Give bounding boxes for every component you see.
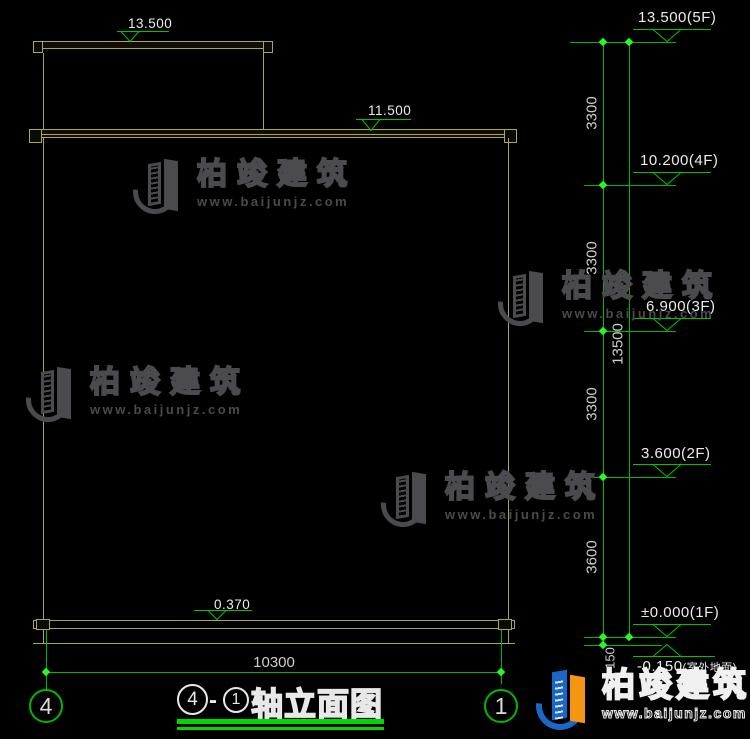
watermark-building-icon bbox=[164, 159, 178, 211]
marker-5f-value: 13.500 bbox=[638, 9, 687, 26]
corner-logo-building-icon bbox=[552, 670, 567, 720]
watermark-text: 柏竣建筑 www.baijunjz.com bbox=[90, 366, 250, 417]
marker-1f-label: ±0.000(1F) bbox=[641, 604, 719, 621]
watermark-text: 柏竣建筑 www.baijunjz.com bbox=[562, 270, 722, 321]
parapet-wall-right bbox=[263, 53, 264, 131]
main-roof-midline bbox=[30, 134, 516, 135]
watermark: 柏竣建筑 www.baijunjz.com bbox=[381, 471, 605, 533]
dim-width: 10300 bbox=[253, 654, 295, 671]
dim-tick bbox=[625, 38, 633, 46]
base-wall-right bbox=[508, 629, 509, 643]
marker-roof-symbol bbox=[356, 119, 411, 131]
axis-bubble-1: 1 bbox=[484, 689, 518, 723]
watermark-building-icon bbox=[529, 271, 543, 323]
level-line-5f bbox=[570, 42, 676, 43]
dim-segment-1: 3300 bbox=[584, 96, 601, 129]
marker-4f-value: 10.200 bbox=[640, 152, 689, 169]
cad-elevation-canvas: 13.500 11.500 0.370 3300 3300 3300 3600 … bbox=[0, 0, 750, 739]
watermark-brand: 柏竣建筑 bbox=[562, 270, 722, 304]
watermark-brand: 柏竣建筑 bbox=[197, 158, 357, 192]
marker-1f-suffix: (1F) bbox=[690, 604, 720, 621]
watermark-logo-icon bbox=[381, 471, 435, 533]
parapet-cap-left bbox=[33, 41, 43, 53]
parapet-wall-left bbox=[43, 53, 44, 131]
title-axis-start-bubble: 4 bbox=[177, 684, 208, 715]
watermark-site: www.baijunjz.com bbox=[197, 194, 357, 209]
watermark-logo-icon bbox=[498, 270, 552, 332]
watermark-site: www.baijunjz.com bbox=[90, 402, 250, 417]
marker-ground-symbol bbox=[633, 644, 715, 657]
dim-tick bbox=[625, 633, 633, 641]
dim-line-total bbox=[629, 42, 630, 638]
corner-logo-building-icon bbox=[570, 675, 585, 723]
marker-4f-label: 10.200(4F) bbox=[640, 152, 718, 169]
watermark: 柏竣建筑 www.baijunjz.com bbox=[133, 158, 357, 220]
marker-plinth-symbol bbox=[194, 610, 252, 620]
parapet-cap-right bbox=[263, 41, 273, 53]
watermark-text: 柏竣建筑 www.baijunjz.com bbox=[197, 158, 357, 209]
watermark-brand: 柏竣建筑 bbox=[90, 366, 250, 400]
main-roof-cap-right bbox=[504, 129, 517, 143]
title-separator: - bbox=[209, 687, 217, 715]
watermark: 柏竣建筑 www.baijunjz.com bbox=[498, 270, 722, 332]
marker-parapet-value: 13.500 bbox=[128, 16, 172, 31]
dim-line-floors bbox=[603, 42, 604, 645]
marker-parapet-label: 13.500 bbox=[128, 16, 172, 31]
axis-bubble-1-number: 1 bbox=[495, 693, 508, 720]
watermark-building-icon bbox=[148, 162, 161, 206]
title-axis-start: 4 bbox=[187, 689, 198, 711]
title-axis-end-bubble: 1 bbox=[223, 687, 249, 713]
corner-logo-site: www.baijunjz.com bbox=[602, 705, 750, 721]
corner-logo-icon bbox=[536, 666, 594, 736]
dim-tick bbox=[599, 38, 607, 46]
base-wall-left bbox=[43, 629, 44, 643]
dim-tick bbox=[42, 668, 50, 676]
watermark-building-icon bbox=[396, 475, 409, 519]
watermark-site: www.baijunjz.com bbox=[562, 306, 722, 321]
watermark-site: www.baijunjz.com bbox=[445, 507, 605, 522]
marker-parapet-symbol bbox=[117, 31, 169, 42]
level-line-4f bbox=[584, 185, 676, 186]
corner-logo-brand: 柏竣建筑 bbox=[602, 666, 750, 704]
marker-2f-symbol bbox=[633, 464, 711, 477]
corner-logo-text: 柏竣建筑 www.baijunjz.com bbox=[602, 666, 750, 721]
watermark-logo-icon bbox=[133, 158, 187, 220]
dim-line-width bbox=[46, 672, 501, 673]
marker-1f-value: ±0.000 bbox=[641, 604, 690, 621]
marker-5f-symbol bbox=[633, 29, 711, 42]
marker-1f-symbol bbox=[633, 624, 711, 637]
dim-segment-4: 3600 bbox=[584, 540, 601, 573]
marker-4f-symbol bbox=[633, 172, 711, 185]
parapet-band bbox=[35, 41, 272, 49]
watermark: 柏竣建筑 www.baijunjz.com bbox=[26, 366, 250, 428]
watermark-building-icon bbox=[412, 472, 426, 524]
dim-tick bbox=[497, 668, 505, 676]
main-roof-cap-left bbox=[29, 129, 42, 143]
plinth-band bbox=[33, 620, 515, 629]
axis-bubble-4: 4 bbox=[29, 689, 63, 723]
watermark-building-icon bbox=[513, 274, 526, 318]
marker-2f-value: 3.600 bbox=[641, 445, 681, 462]
marker-5f-suffix: (5F) bbox=[687, 9, 717, 26]
wall-right bbox=[508, 138, 509, 621]
marker-5f-label: 13.500(5F) bbox=[638, 9, 716, 26]
watermark-text: 柏竣建筑 www.baijunjz.com bbox=[445, 471, 605, 522]
dim-segment-3: 3300 bbox=[584, 387, 601, 420]
watermark-building-icon bbox=[57, 367, 71, 419]
marker-roof-value: 11.500 bbox=[368, 103, 411, 118]
marker-2f-label: 3.600(2F) bbox=[641, 445, 711, 462]
ground-line bbox=[33, 643, 515, 644]
axis-bubble-4-number: 4 bbox=[40, 693, 53, 720]
marker-roof-label: 11.500 bbox=[368, 103, 411, 118]
watermark-brand: 柏竣建筑 bbox=[445, 471, 605, 505]
title-axis-end: 1 bbox=[232, 691, 241, 709]
corner-logo: 柏竣建筑 www.baijunjz.com bbox=[536, 666, 750, 736]
plinth-cap-right bbox=[498, 619, 512, 630]
marker-4f-suffix: (4F) bbox=[689, 152, 719, 169]
title-underline-thin bbox=[177, 727, 384, 730]
dim-tick bbox=[599, 181, 607, 189]
marker-2f-suffix: (2F) bbox=[681, 445, 711, 462]
watermark-building-icon bbox=[41, 370, 54, 414]
title-underline-thick bbox=[177, 719, 384, 724]
witness-line-left bbox=[46, 630, 47, 690]
watermark-logo-icon bbox=[26, 366, 80, 428]
